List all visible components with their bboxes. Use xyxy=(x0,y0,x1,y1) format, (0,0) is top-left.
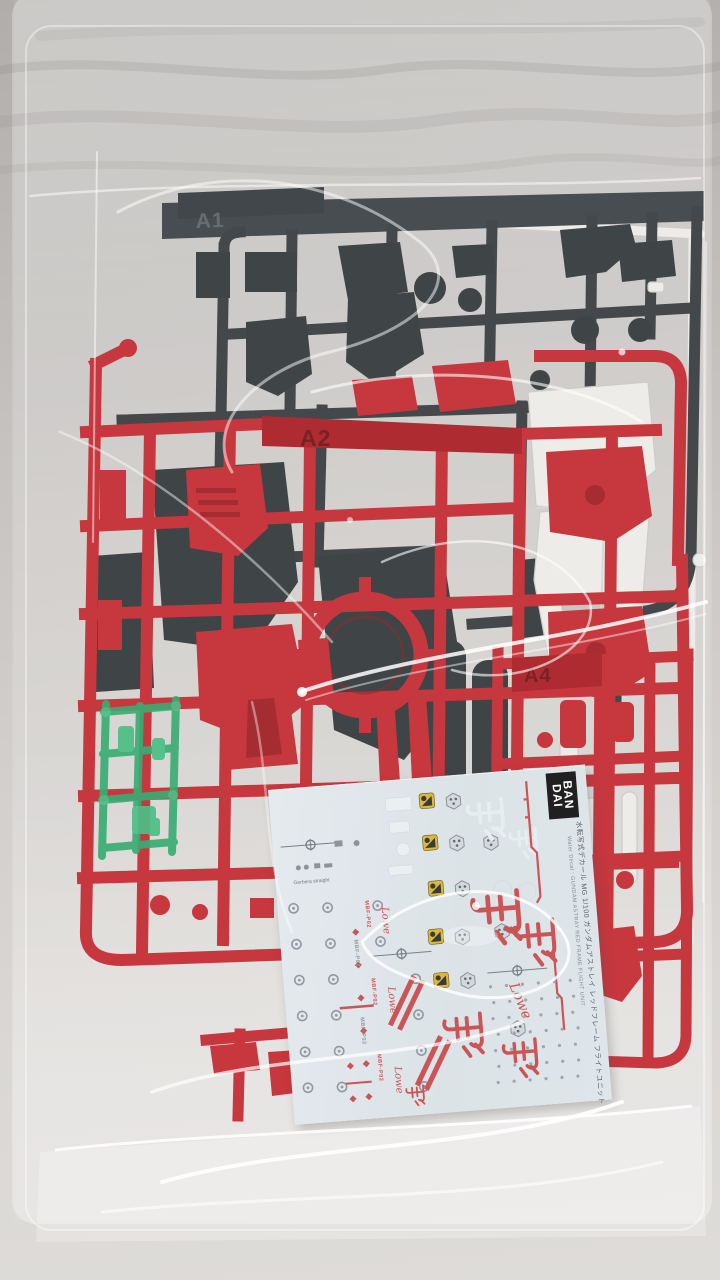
decal-dot-grid xyxy=(489,978,584,1084)
bandai-logo: BAN DAI xyxy=(546,771,580,819)
sprue-green-clear xyxy=(99,700,181,856)
decal-kanji-fly-white xyxy=(467,796,537,862)
decal-signature: Lowe xyxy=(385,986,398,1014)
decal-caution-markings xyxy=(417,787,526,1043)
bandai-logo-line2: DAI xyxy=(550,784,563,808)
kit-bag-photo: A1 xyxy=(0,0,720,1280)
sprue-a2-label: A2 xyxy=(300,425,331,451)
sprue-a4-label: A4 xyxy=(524,665,552,687)
decal-signature: Lowe xyxy=(392,1066,405,1094)
decal-sheet: BAN DAI 水転写式デカール MG 1/100 ガンダムアストレイ レッドフ… xyxy=(268,764,612,1124)
decal-signature: Lowe xyxy=(379,907,392,935)
sprue-a1-label: A1 xyxy=(195,209,225,233)
